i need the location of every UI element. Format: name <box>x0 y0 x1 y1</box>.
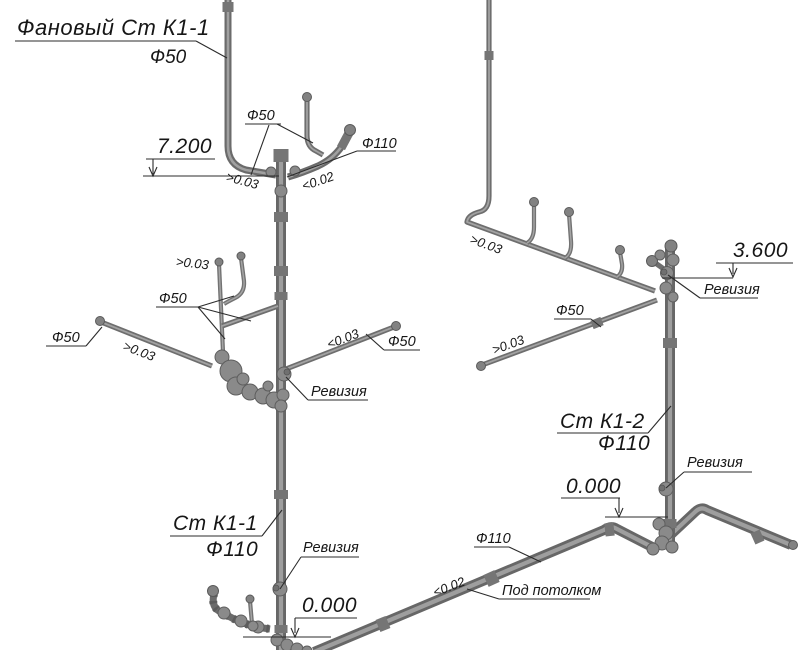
axonometric-plumbing-diagram: Фановый Ст К1-1 Ф50 7.200 3.600 0.000 0.… <box>0 0 802 650</box>
vent-stack-diameter: Ф50 <box>150 47 187 68</box>
slope-label-mid-left: >0.03 <box>175 254 210 272</box>
revision-label-k1-2: Ревизия <box>687 455 743 471</box>
under-ceiling-label: Под потолком <box>502 583 601 599</box>
revision-fitting-k1-1-upper <box>277 367 291 381</box>
mid-left-riser-pipe <box>215 258 223 352</box>
outlet-pipe <box>664 508 798 549</box>
right-feed-hook-1 <box>527 198 539 244</box>
elevation-0000-right: 0.000 <box>566 475 621 498</box>
stack-k1-2-diameter: Ф110 <box>598 432 650 455</box>
bottom-trap-pipe <box>208 586 271 634</box>
bottom-stub-pipe <box>246 595 258 631</box>
stack-k1-1-label: Ст К1-1 <box>173 512 258 535</box>
diameter-label-f50-right: Ф50 <box>556 303 584 319</box>
diameter-label-f110-top: Ф110 <box>362 136 397 152</box>
diameter-label-f50-mid: Ф50 <box>159 291 187 307</box>
right-feed-hook-3 <box>616 246 625 278</box>
diameter-label-f50-mid-right: Ф50 <box>388 334 416 350</box>
revision-label-mid: Ревизия <box>311 384 367 400</box>
top-fixture-stub-pipe <box>303 93 324 156</box>
diameter-label-f50-left: Ф50 <box>52 330 80 346</box>
stack-k1-1-diameter: Ф110 <box>206 538 258 561</box>
diagram-canvas: Фановый Ст К1-1 Ф50 7.200 3.600 0.000 0.… <box>0 0 802 650</box>
elevation-3600: 3.600 <box>733 239 788 262</box>
stack-k1-2-label: Ст К1-2 <box>560 410 645 433</box>
revision-label-top-right: Ревизия <box>704 282 760 298</box>
mid-left-hook-pipe <box>224 252 245 304</box>
vent-stack-label: Фановый Ст К1-1 <box>17 15 210 40</box>
elevation-0000-left: 0.000 <box>302 594 357 617</box>
diameter-label-f50-top: Ф50 <box>247 108 275 124</box>
elevation-7200: 7.200 <box>157 135 212 158</box>
diameter-label-f110-collector: Ф110 <box>476 531 511 547</box>
right-feed-hook-2 <box>565 208 574 259</box>
revision-label-bottom: Ревизия <box>303 540 359 556</box>
vent-stack-pipe <box>228 0 276 175</box>
